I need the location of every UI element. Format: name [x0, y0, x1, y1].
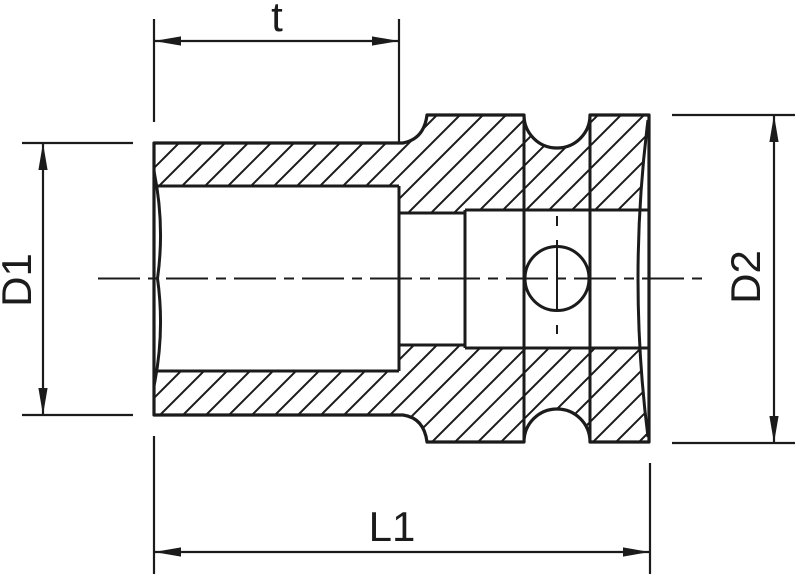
dimension-label-t: t: [271, 0, 283, 38]
drawing-canvas: t D1 D2 L1: [0, 0, 800, 577]
dimension-arrow: [769, 115, 778, 142]
dimension-arrow: [154, 547, 181, 556]
dimension-label-l1: L1: [369, 506, 416, 548]
dimension-arrow: [769, 416, 778, 443]
dimension-arrow: [623, 547, 650, 556]
dimension-arrow: [372, 36, 399, 45]
dimension-arrow: [38, 388, 47, 415]
socket-section-drawing: [0, 0, 800, 577]
dimension-label-d2: D2: [725, 250, 767, 304]
dimension-label-d1: D1: [0, 253, 38, 307]
dimension-arrow: [38, 143, 47, 170]
dimension-arrow: [154, 36, 181, 45]
dimensions: [22, 19, 795, 574]
